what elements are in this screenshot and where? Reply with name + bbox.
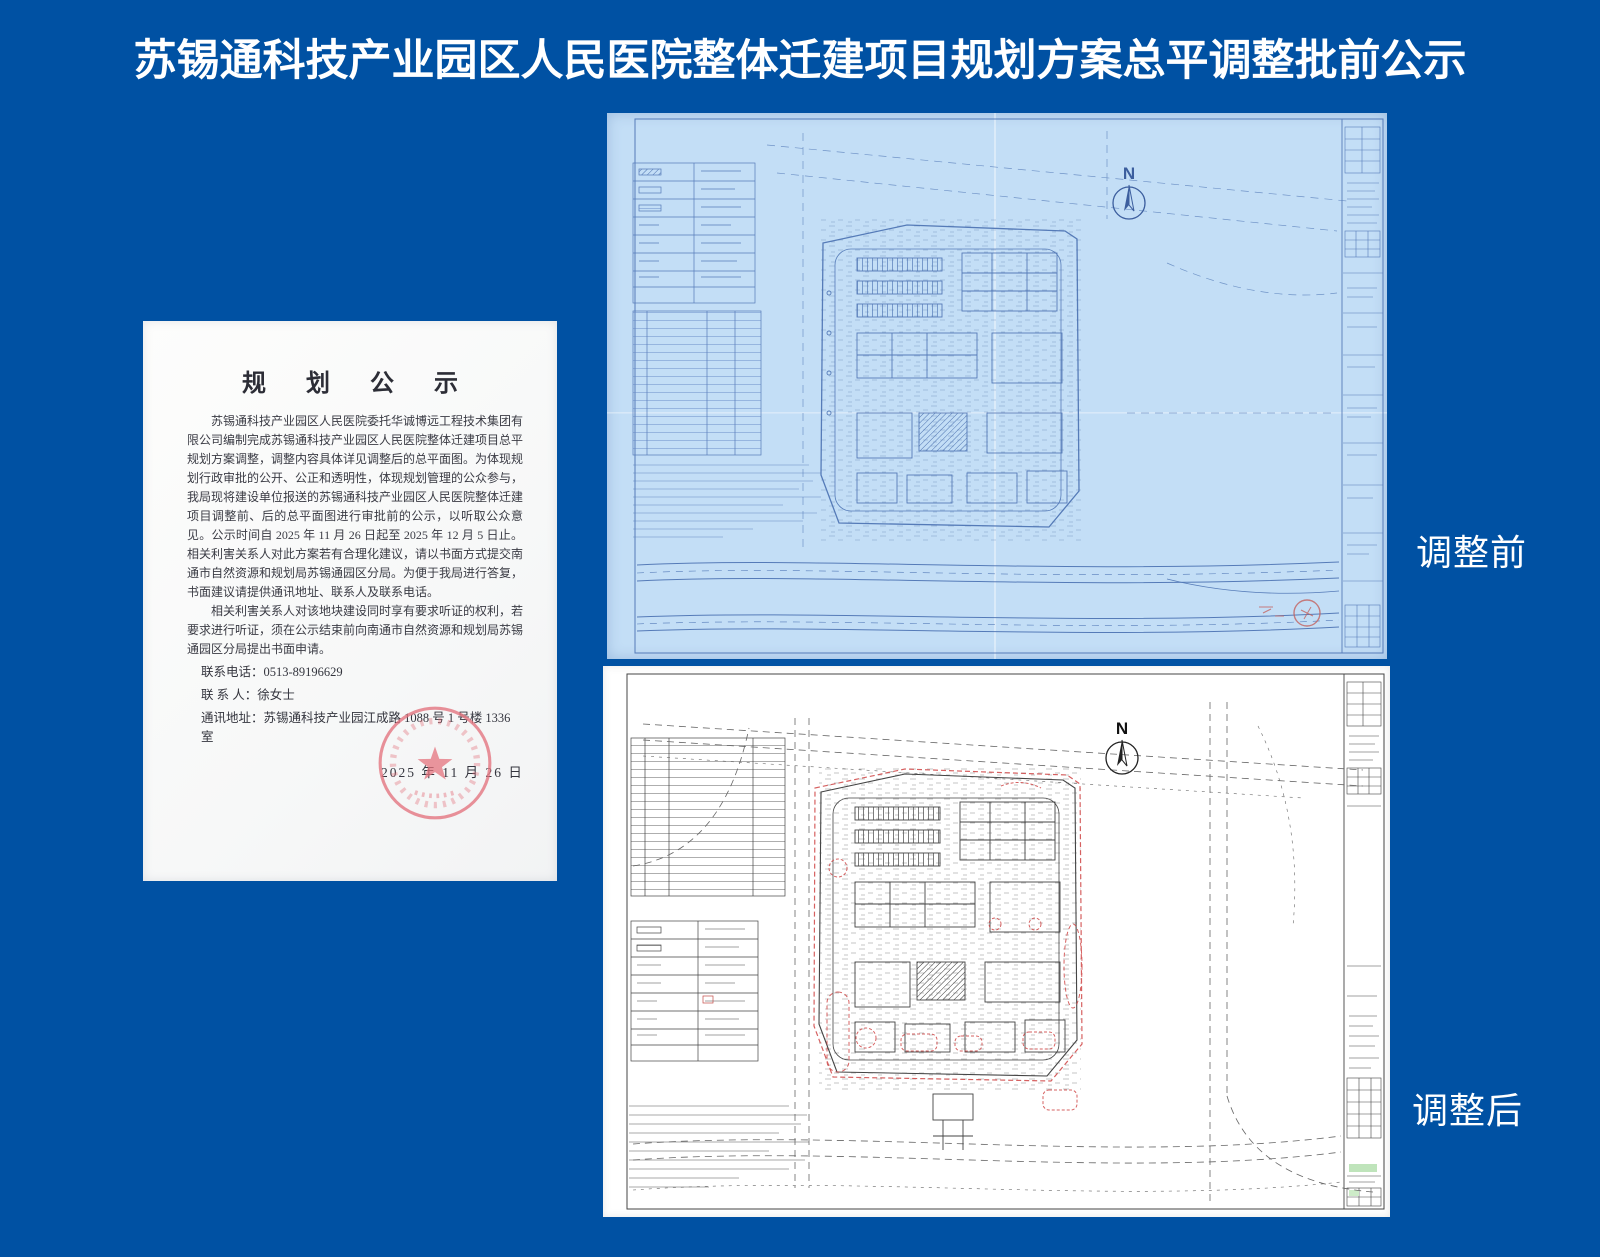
page-title: 苏锡通科技产业园区人民医院整体迁建项目规划方案总平调整批前公示 — [0, 26, 1600, 88]
label-before-adjustment: 调整前 — [1416, 524, 1527, 576]
legend-table — [631, 921, 758, 1061]
annotation-texture — [819, 768, 1081, 1090]
legend-table — [633, 163, 755, 303]
letter-body: 苏锡通科技产业园区人民医院委托华诚博远工程技术集团有限公司编制完成苏锡通科技产业… — [143, 398, 557, 747]
label-after-adjustment: 调整后 — [1412, 1082, 1523, 1134]
indicators-table — [631, 738, 785, 896]
title-block — [1347, 682, 1381, 1206]
letter-heading: 规 划 公 示 — [143, 363, 557, 398]
notes-block — [629, 1106, 809, 1187]
letter-paragraph: 苏锡通科技产业园区人民医院委托华诚博远工程技术集团有限公司编制完成苏锡通科技产业… — [187, 412, 523, 602]
site-plan-after-canvas: N — [603, 666, 1390, 1217]
site-plan-after: N — [603, 666, 1390, 1217]
planning-notice-letter: 规 划 公 示 苏锡通科技产业园区人民医院委托华诚博远工程技术集团有限公司编制完… — [143, 321, 557, 881]
letter-paragraph: 相关利害关系人对该地块建设同时享有要求听证的权利，若要求进行听证，须在公示结束前… — [187, 602, 523, 659]
north-label: N — [1116, 719, 1128, 738]
north-label: N — [1123, 164, 1135, 183]
title-block — [1343, 127, 1383, 647]
announcement-page: 苏锡通科技产业园区人民医院整体迁建项目规划方案总平调整批前公示 规 划 公 示 … — [0, 0, 1600, 1257]
north-arrow-icon: N — [1106, 719, 1138, 774]
indicators-table — [633, 311, 761, 455]
site-plan-before: N — [607, 113, 1387, 659]
official-seal-icon — [371, 699, 499, 827]
site-plan-before-canvas: N — [607, 113, 1387, 659]
main-road — [637, 562, 1339, 633]
contact-phone: 联系电话：0513-89196629 — [201, 663, 523, 682]
annotation-texture — [821, 219, 1083, 541]
notes-block — [633, 465, 821, 537]
